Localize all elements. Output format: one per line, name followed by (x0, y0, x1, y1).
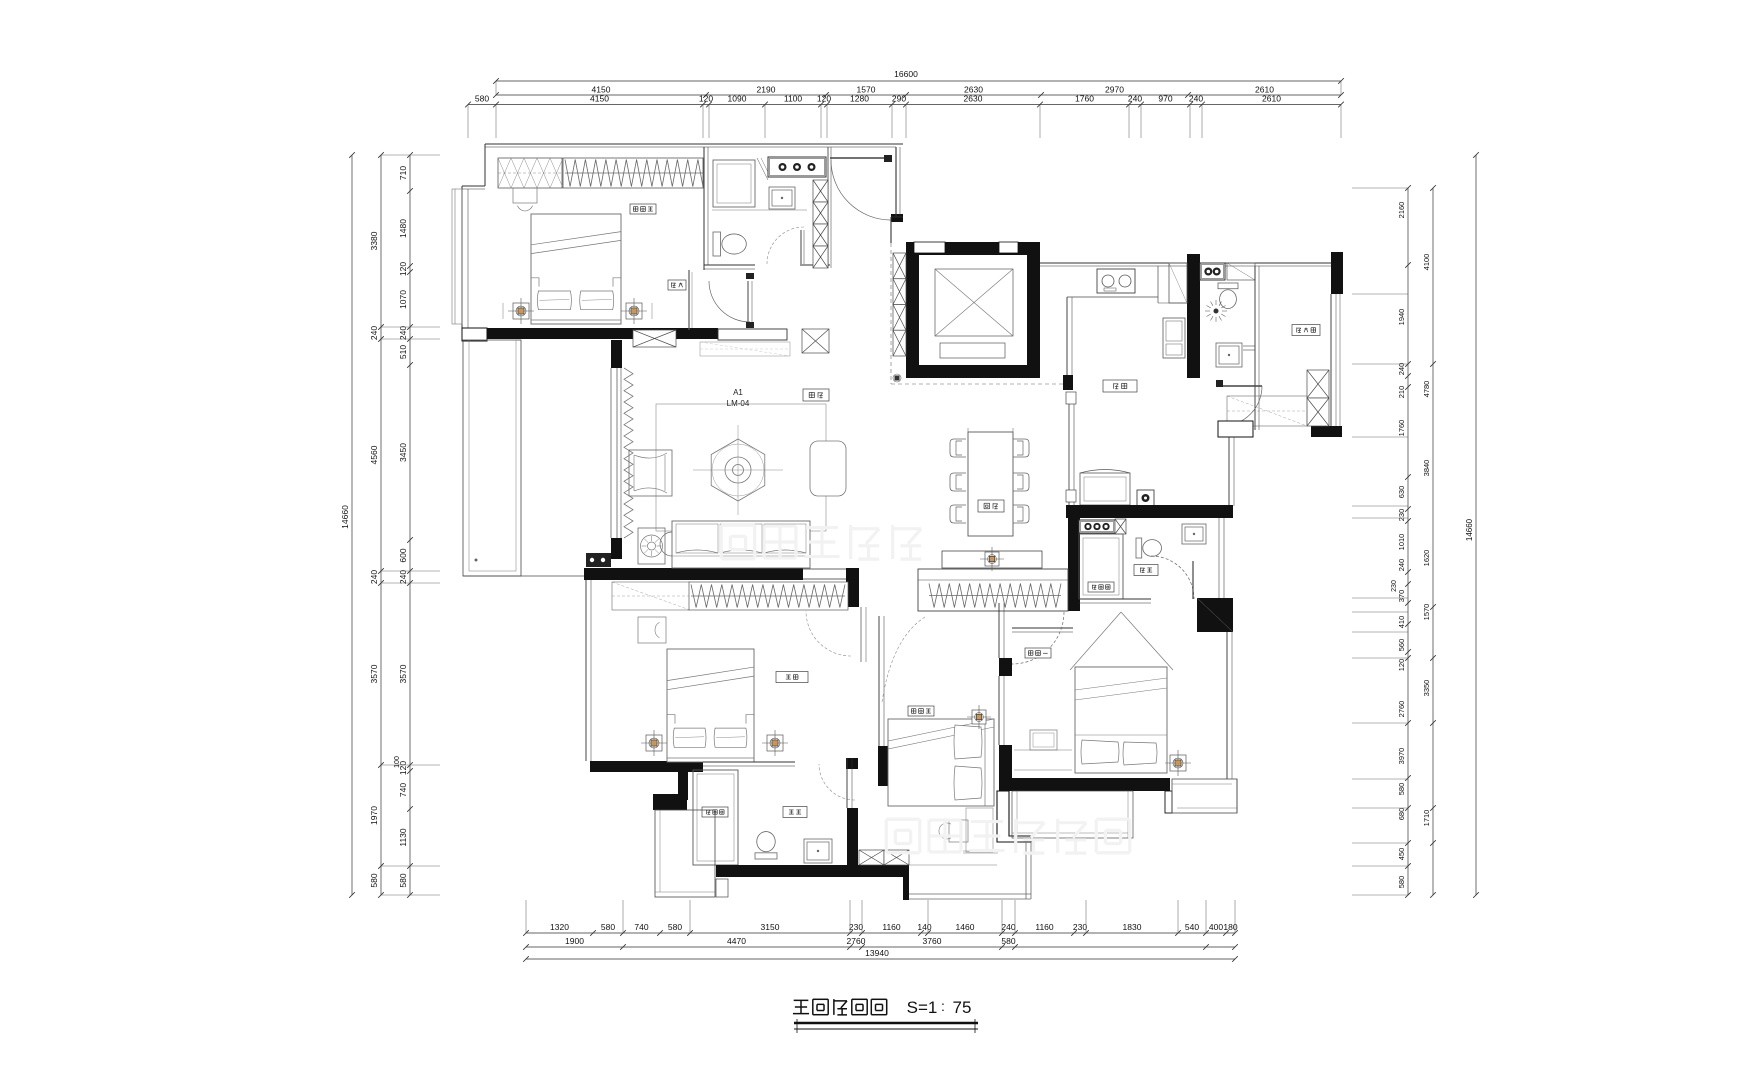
svg-text:1760: 1760 (1397, 420, 1406, 437)
svg-text:1940: 1940 (1397, 309, 1406, 326)
svg-text:3840: 3840 (1422, 460, 1431, 477)
svg-text:120: 120 (398, 262, 408, 276)
svg-text:1830: 1830 (1123, 922, 1142, 932)
svg-text:290: 290 (892, 94, 906, 104)
svg-text:580: 580 (668, 922, 682, 932)
svg-text:140: 140 (917, 922, 931, 932)
svg-text:400: 400 (1209, 922, 1223, 932)
svg-text:13940: 13940 (865, 948, 889, 958)
svg-text:75: 75 (953, 998, 972, 1017)
svg-text:3350: 3350 (1422, 680, 1431, 697)
svg-text:230: 230 (1397, 509, 1406, 522)
svg-text:4470: 4470 (727, 936, 746, 946)
svg-text:2630: 2630 (964, 94, 983, 104)
svg-text:1160: 1160 (1035, 922, 1054, 932)
svg-text:230: 230 (849, 922, 863, 932)
svg-text:240: 240 (369, 570, 379, 584)
svg-text:510: 510 (398, 345, 408, 359)
svg-text:4780: 4780 (1422, 381, 1431, 398)
svg-text:370: 370 (1397, 590, 1406, 603)
svg-text:1010: 1010 (1397, 534, 1406, 551)
svg-text:1970: 1970 (369, 806, 379, 825)
svg-text:1620: 1620 (1422, 550, 1431, 567)
svg-text:1090: 1090 (728, 94, 747, 104)
svg-text:740: 740 (398, 783, 408, 797)
svg-text:S=1: S=1 (907, 998, 938, 1017)
svg-text:1900: 1900 (565, 936, 584, 946)
svg-text:600: 600 (398, 548, 408, 562)
svg-text:680: 680 (1397, 808, 1406, 821)
svg-text:120: 120 (1397, 659, 1406, 672)
svg-text:1070: 1070 (398, 290, 408, 309)
svg-text:240: 240 (1128, 94, 1142, 104)
svg-text:120: 120 (699, 94, 713, 104)
svg-text:240: 240 (398, 570, 408, 584)
svg-text:180: 180 (1223, 922, 1237, 932)
svg-text:2760: 2760 (847, 936, 866, 946)
svg-text:580: 580 (1001, 936, 1015, 946)
svg-text:3570: 3570 (369, 664, 379, 683)
svg-text:230: 230 (1391, 580, 1398, 592)
svg-text:2970: 2970 (1105, 85, 1124, 95)
svg-text:1320: 1320 (550, 922, 569, 932)
svg-text:970: 970 (1158, 94, 1172, 104)
svg-text:2190: 2190 (757, 85, 776, 95)
svg-text:240: 240 (1001, 922, 1015, 932)
svg-text:1280: 1280 (850, 94, 869, 104)
svg-text:2160: 2160 (1397, 202, 1406, 219)
svg-text:560: 560 (1397, 639, 1406, 652)
svg-text:580: 580 (475, 94, 489, 104)
svg-text:1460: 1460 (956, 922, 975, 932)
svg-text:1760: 1760 (1075, 94, 1094, 104)
svg-text:3380: 3380 (369, 231, 379, 250)
svg-text:240: 240 (369, 326, 379, 340)
svg-text:710: 710 (398, 166, 408, 180)
svg-text:14660: 14660 (340, 505, 350, 529)
svg-text:3150: 3150 (761, 922, 780, 932)
svg-text:120: 120 (817, 94, 831, 104)
svg-text:1570: 1570 (1422, 604, 1431, 621)
svg-text::: : (941, 998, 945, 1014)
svg-text:2610: 2610 (1262, 94, 1281, 104)
svg-text:1130: 1130 (398, 828, 408, 847)
svg-text:1480: 1480 (398, 219, 408, 238)
svg-text:580: 580 (398, 873, 408, 887)
svg-text:4560: 4560 (369, 445, 379, 464)
svg-text:580: 580 (1397, 876, 1406, 889)
svg-text:1710: 1710 (1422, 810, 1431, 827)
svg-text:740: 740 (634, 922, 648, 932)
svg-text:4100: 4100 (1422, 254, 1431, 271)
svg-text:LM-04: LM-04 (727, 399, 750, 408)
svg-text:240: 240 (1189, 94, 1203, 104)
svg-text:14660: 14660 (1465, 518, 1474, 541)
svg-text:230: 230 (1073, 922, 1087, 932)
svg-text:4150: 4150 (590, 94, 609, 104)
svg-text:2760: 2760 (1397, 701, 1406, 718)
svg-text:100: 100 (394, 756, 401, 768)
svg-text:3570: 3570 (398, 664, 408, 683)
svg-text:580: 580 (1397, 783, 1406, 796)
svg-text:3760: 3760 (923, 936, 942, 946)
svg-text:450: 450 (1397, 848, 1406, 861)
svg-text:540: 540 (1185, 922, 1199, 932)
svg-text:1100: 1100 (784, 94, 803, 104)
svg-text:240: 240 (1397, 363, 1406, 376)
svg-text:240: 240 (398, 326, 408, 340)
svg-text:3970: 3970 (1397, 748, 1406, 765)
svg-text:1160: 1160 (882, 922, 901, 932)
svg-text:580: 580 (369, 873, 379, 887)
svg-text:630: 630 (1397, 486, 1406, 499)
svg-text:410: 410 (1397, 616, 1406, 629)
svg-text:580: 580 (601, 922, 615, 932)
svg-text:3450: 3450 (398, 443, 408, 462)
svg-text:A1: A1 (733, 388, 743, 397)
svg-text:16600: 16600 (894, 69, 918, 79)
svg-text:240: 240 (1397, 559, 1406, 572)
svg-text:210: 210 (1397, 386, 1406, 399)
